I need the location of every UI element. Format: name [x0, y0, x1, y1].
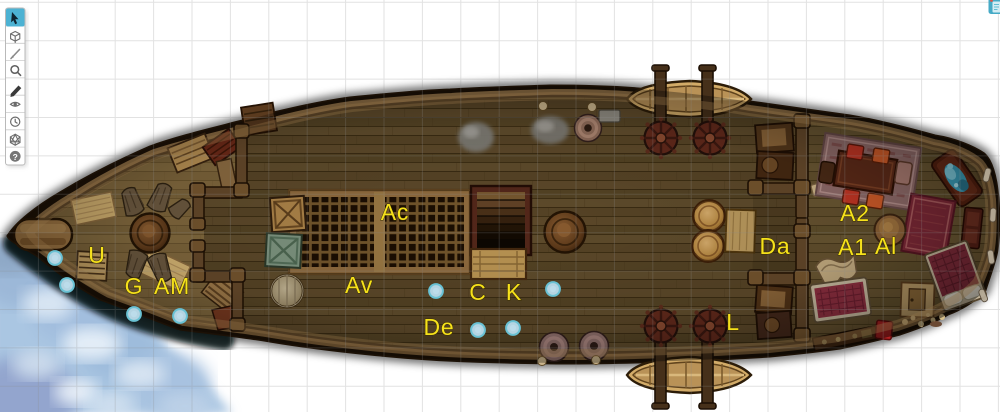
svg-text:C: C [469, 279, 486, 305]
svg-text:AM: AM [154, 273, 190, 299]
svg-text:A1: A1 [838, 234, 868, 260]
svg-text:Av: Av [345, 272, 373, 298]
svg-text:G: G [125, 273, 144, 299]
svg-text:Al: Al [875, 233, 897, 259]
svg-text:Ac: Ac [381, 199, 409, 225]
svg-text:U: U [88, 242, 105, 268]
svg-text:L: L [726, 309, 740, 335]
svg-text:De: De [423, 314, 454, 340]
svg-text:A2: A2 [840, 200, 870, 226]
svg-text:?: ? [13, 152, 18, 162]
svg-text:Da: Da [759, 233, 790, 259]
svg-text:K: K [506, 279, 522, 305]
